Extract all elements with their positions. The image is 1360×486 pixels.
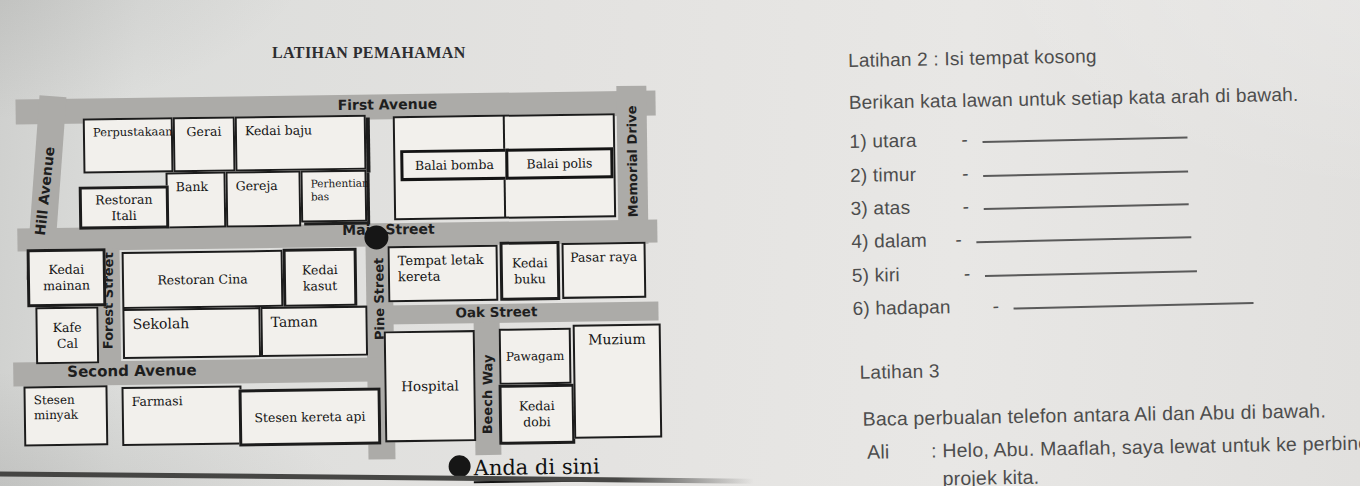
item-word: hadapan xyxy=(875,296,951,318)
exercise-column: Latihan 2 : Isi tempat kosong Berikan ka… xyxy=(844,0,1360,486)
building-label: Kedai baju xyxy=(245,122,312,138)
building-label: Bank xyxy=(176,179,208,194)
building-balai-bomba: Balai bomba xyxy=(400,149,508,182)
item-dash: - xyxy=(992,295,999,317)
answer-blank xyxy=(982,135,1187,143)
building-label: Farmasi xyxy=(132,393,183,409)
building-label: Stesen kereta api xyxy=(254,408,365,425)
building-taman: Taman xyxy=(260,306,368,357)
answer-blank xyxy=(984,269,1196,277)
dialog-line-1: Ali: Helo, Abu. Maaflah, saya lewat untu… xyxy=(867,432,1360,464)
answer-blank xyxy=(983,202,1188,210)
exercise3-heading: Latihan 3 xyxy=(860,360,940,383)
memorial-drive-label: Memorial Drive xyxy=(624,101,641,221)
building-restoran-cina: Restoran Cina xyxy=(122,250,284,309)
building-gereja: Gereja xyxy=(225,171,301,228)
building-label: Muzium xyxy=(588,331,646,348)
building-label: Restoran Cina xyxy=(157,271,248,288)
building-label: Gereja xyxy=(236,178,278,194)
dialog-colon: : xyxy=(931,439,937,461)
beech-way-label: Beech Way xyxy=(480,334,495,454)
dialog-text: Helo, Abu. Maaflah, saya lewat untuk ke … xyxy=(942,432,1360,462)
dialog-speaker: Ali xyxy=(867,440,931,464)
answer-blank xyxy=(983,169,1188,177)
exercise3-instruction: Baca perbualan telefon antara Ali dan Ab… xyxy=(862,399,1326,430)
building-label: Kedai dobi xyxy=(517,398,557,430)
exercise2-item-3: 3) atas - xyxy=(851,192,1189,220)
item-number: 4) xyxy=(851,231,869,252)
exercise2-item-6: 6) hadapan - xyxy=(852,291,1253,320)
building-stesen-minyak: Stesen minyak xyxy=(23,385,108,446)
building-label: Pasar raya xyxy=(570,249,637,265)
item-word: timur xyxy=(873,164,917,186)
item-dash: - xyxy=(964,263,971,285)
building-label: Pawagam xyxy=(506,348,565,364)
building-label: Sekolah xyxy=(132,315,189,332)
exercise2-heading: Latihan 2 : Isi tempat kosong xyxy=(848,45,1097,72)
exercise2-item-4: 4) dalam - xyxy=(851,225,1191,253)
building-balai-polis: Balai polis xyxy=(505,147,613,180)
building-sekolah: Sekolah xyxy=(122,307,261,359)
second-avenue-label: Second Avenue xyxy=(67,361,197,381)
building-stesen-kereta-api: Stesen kereta api xyxy=(239,387,382,446)
main-street-label: Main Street xyxy=(342,221,435,238)
building-pawagam: Pawagam xyxy=(499,328,572,385)
building-hospital: Hospital xyxy=(384,330,477,442)
item-word: kiri xyxy=(875,264,900,285)
building-label: Restoran Itali xyxy=(82,191,166,223)
building-label: Perpustakaan xyxy=(93,124,173,139)
building-label: Kafe Cal xyxy=(47,319,87,351)
building-label: Stesen minyak xyxy=(34,393,84,424)
building-label: Tempat letak kereta xyxy=(398,252,484,284)
building-gerai: Gerai xyxy=(173,116,236,172)
item-word: atas xyxy=(873,197,910,219)
item-number: 6) xyxy=(852,298,870,319)
building-kedai-dobi: Kedai dobi xyxy=(498,384,575,445)
item-dash: - xyxy=(962,163,969,185)
exercise2-item-1: 1) utara - xyxy=(849,125,1187,153)
building-label: Kedai mainan xyxy=(30,262,103,294)
answer-blank xyxy=(1013,301,1253,309)
exercise2-item-5: 5) kiri - xyxy=(852,259,1197,287)
item-number: 2) xyxy=(850,165,868,186)
first-avenue-label: First Avenue xyxy=(337,96,437,113)
oak-street-label: Oak Street xyxy=(455,303,537,320)
building-label: Balai polis xyxy=(526,155,592,171)
item-number: 5) xyxy=(852,265,870,286)
you-are-here-legend-dot xyxy=(448,455,470,477)
building-perpustakaan: Perpustakaan xyxy=(83,117,174,173)
dialog-line-2: projek kita. xyxy=(942,466,1039,486)
exercise2-instruction: Berikan kata lawan untuk setiap kata ara… xyxy=(849,84,1299,114)
building-label: Taman xyxy=(270,313,317,330)
building-label: Balai bomba xyxy=(415,157,494,173)
building-kedai-mainan: Kedai mainan xyxy=(27,248,107,307)
building-farmasi: Farmasi xyxy=(121,385,242,446)
building-label: Kedai buku xyxy=(512,255,548,287)
building-kafe-cal: Kafe Cal xyxy=(35,306,99,364)
exercise2-item-2: 2) timur - xyxy=(850,159,1188,187)
building-label: Kedai kasut xyxy=(298,262,342,294)
building-bank: Bank xyxy=(165,172,226,229)
building-label: Hospital xyxy=(401,377,459,395)
building-restoran-itali: Restoran Itali xyxy=(79,185,170,229)
item-dash: - xyxy=(961,129,968,151)
building-kedai-baju: Kedai baju xyxy=(235,115,367,172)
building-tempat-letak-kereta: Tempat letak kereta xyxy=(388,245,499,303)
building-kedai-kasut: Kedai kasut xyxy=(283,248,358,308)
building-label: Gerai xyxy=(186,124,221,139)
town-map: First Avenue Main Street Second Avenue O… xyxy=(0,0,693,486)
item-dash: - xyxy=(963,196,970,218)
building-muzium: Muzium xyxy=(573,324,663,439)
item-word: dalam xyxy=(874,230,927,252)
item-number: 1) xyxy=(849,131,867,152)
building-pasar-raya: Pasar raya xyxy=(562,242,647,299)
item-number: 3) xyxy=(851,198,869,219)
building-kedai-buku: Kedai buku xyxy=(499,241,560,301)
item-word: utara xyxy=(872,130,917,152)
civic-strip: Balai bomba Balai polis xyxy=(400,147,613,181)
building-label: Perhentian bas xyxy=(311,177,369,203)
item-dash: - xyxy=(955,229,962,251)
building-perhentian-bas: Perhentian bas xyxy=(300,170,367,223)
worksheet-photo: LATIHAN PEMAHAMAN First Avenue Main Stre… xyxy=(0,0,1360,486)
answer-blank xyxy=(976,235,1191,243)
